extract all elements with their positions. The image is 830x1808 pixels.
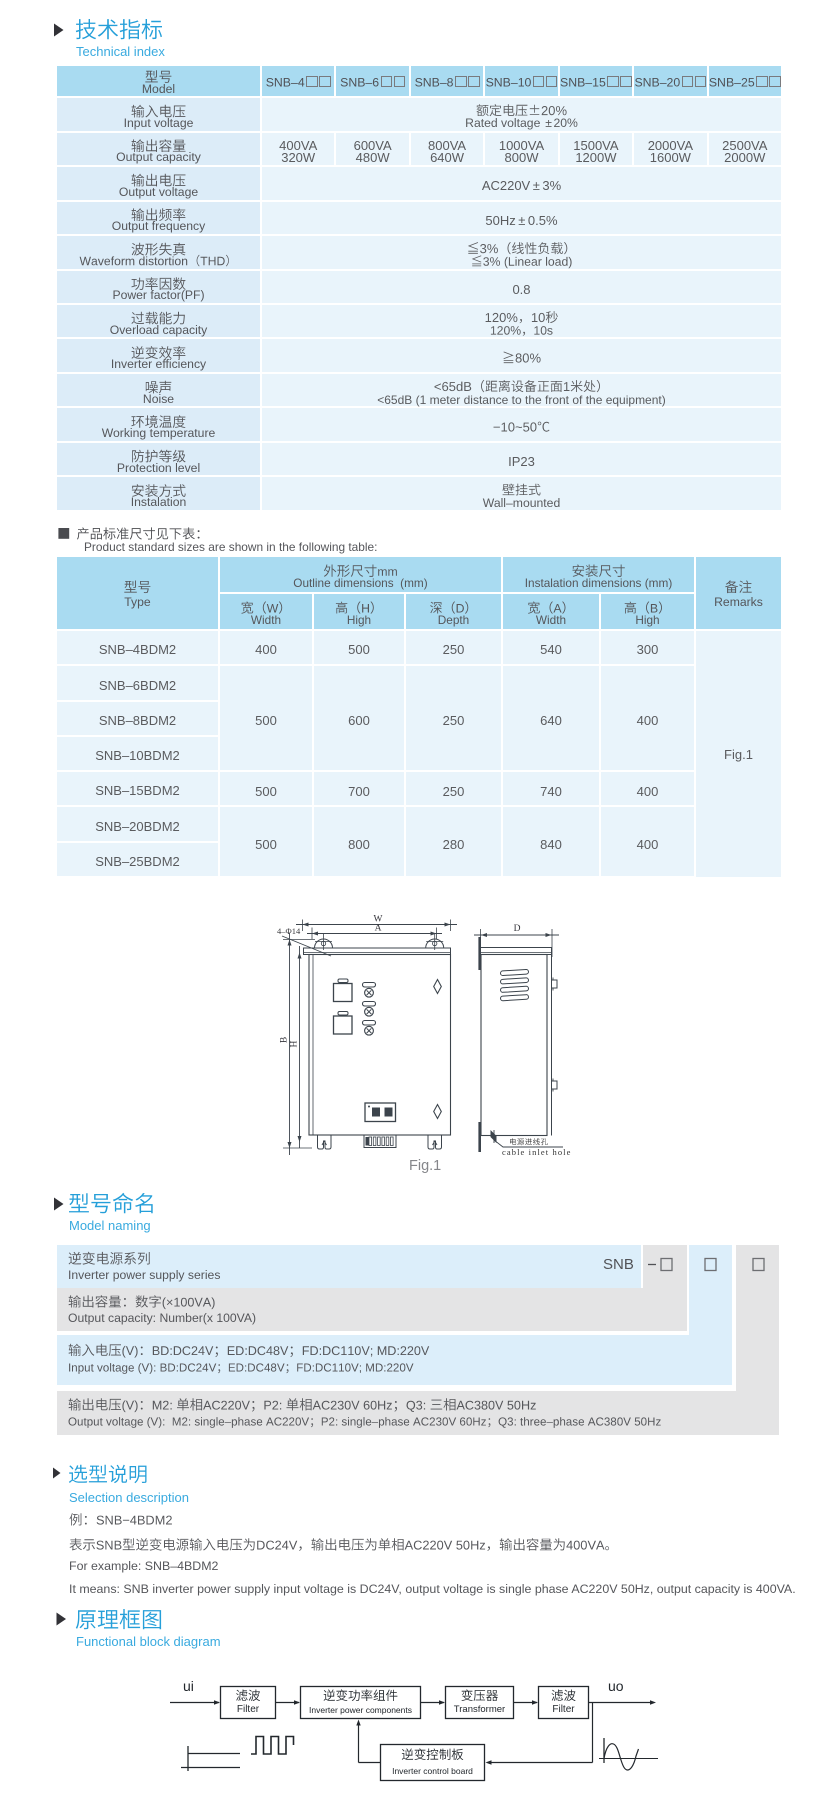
svg-text:A: A (375, 924, 382, 934)
svg-text:D: D (514, 924, 521, 934)
svg-text:4–Φ14: 4–Φ14 (277, 926, 301, 936)
svg-text:B: B (280, 1037, 290, 1043)
svg-text:H: H (290, 1040, 300, 1047)
